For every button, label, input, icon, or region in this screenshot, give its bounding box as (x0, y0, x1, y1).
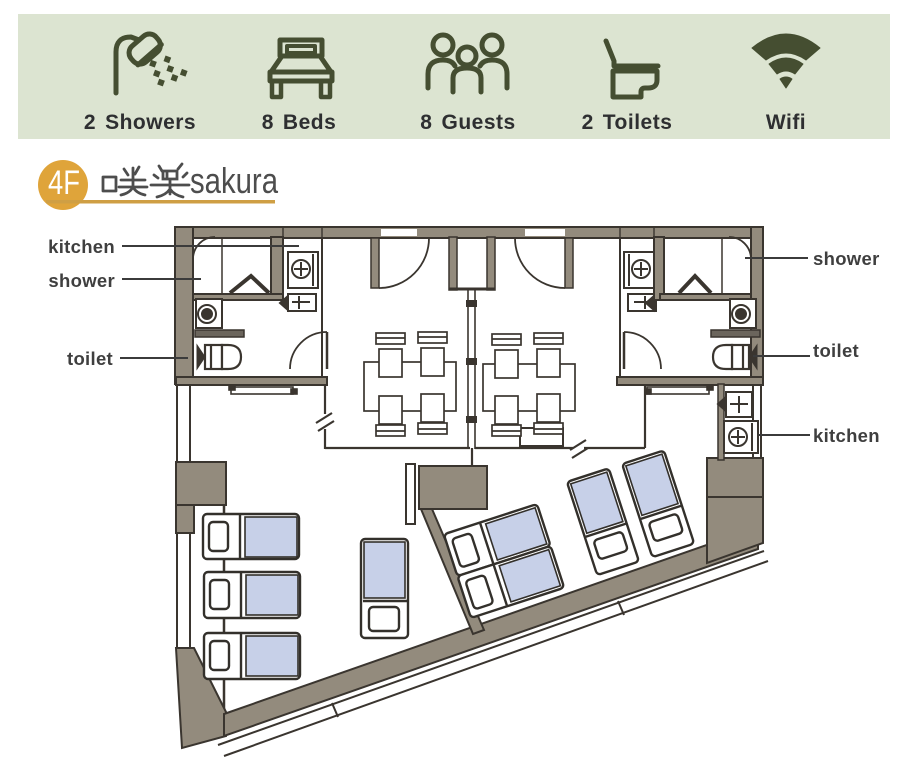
svg-text:kitchen: kitchen (48, 236, 115, 257)
svg-text:toilet: toilet (813, 340, 859, 361)
svg-text:toilet: toilet (67, 348, 113, 369)
svg-text:Wifi: Wifi (766, 111, 806, 134)
svg-text:4F: 4F (48, 164, 80, 202)
svg-text:sakura: sakura (190, 160, 279, 201)
svg-text:shower: shower (48, 270, 115, 291)
svg-text:kitchen: kitchen (813, 425, 880, 446)
svg-text:8Beds: 8Beds (262, 111, 337, 134)
svg-text:shower: shower (813, 248, 880, 269)
